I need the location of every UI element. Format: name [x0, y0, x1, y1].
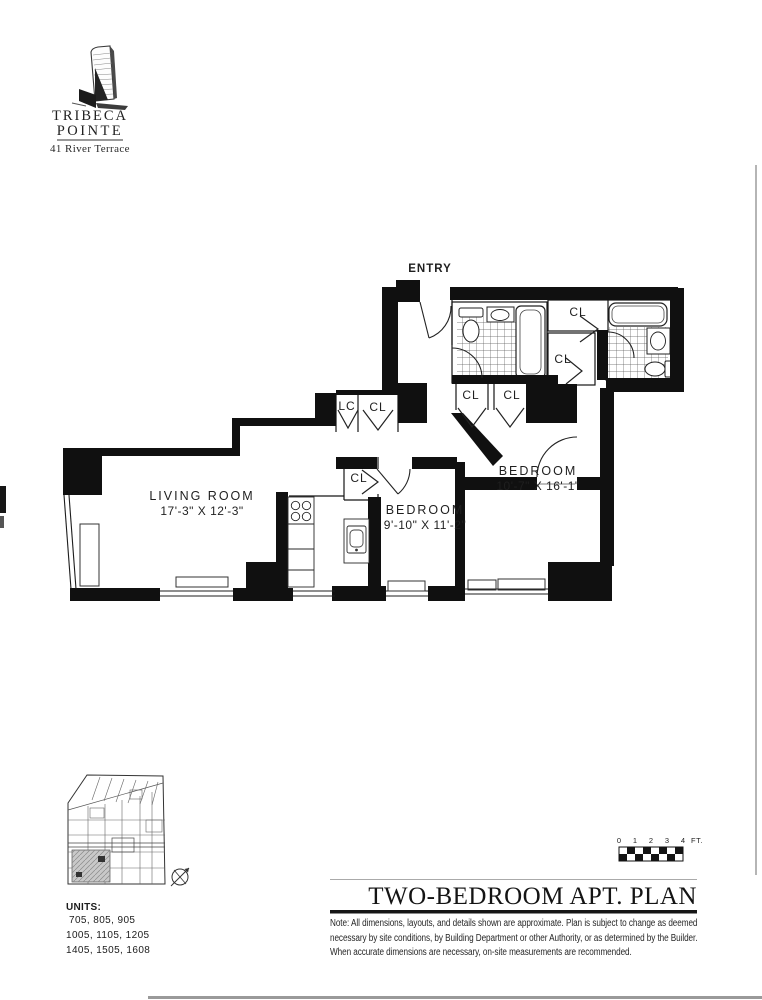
closet-label-cl-top-1: CL — [563, 305, 593, 319]
units-row: 1405, 1505, 1608 — [66, 943, 150, 958]
bedroom1-label: BEDROOM 9'-10" X 11'-2" — [365, 503, 485, 532]
logo-name-line2: POINTE — [40, 123, 140, 140]
scale-tick: 2 — [645, 836, 657, 845]
units-block: UNITS: 705, 805, 905 1005, 1105, 1205 14… — [66, 902, 150, 958]
units-row: 1005, 1105, 1205 — [66, 928, 150, 943]
scale-tick: 0 — [613, 836, 625, 845]
bathroom-1 — [452, 302, 547, 383]
room-dims: 9'-10" X 11'-2" — [365, 518, 485, 532]
floor-plan-drawing — [63, 280, 684, 601]
scale-tick: 4 — [677, 836, 689, 845]
closet-label-cl-top-2: CL — [548, 352, 578, 366]
room-dims: 17'-3" X 12'-3" — [132, 504, 272, 518]
unit-location-highlight — [72, 850, 110, 882]
closet-label-cl-dining: CL — [363, 400, 393, 414]
room-name: LIVING ROOM — [132, 489, 272, 503]
room-name: BEDROOM — [478, 464, 598, 478]
scale-bar — [619, 847, 683, 861]
kitchen-fixtures — [288, 497, 369, 587]
closet-label-cl-hall-2: CL — [497, 388, 527, 402]
units-row: 705, 805, 905 — [66, 913, 150, 928]
logo-address: 41 River Terrace — [40, 143, 140, 155]
room-name: BEDROOM — [365, 503, 485, 517]
bathroom-2 — [606, 300, 672, 380]
closet-label-cl-bedroom1: CL — [345, 471, 373, 485]
compass-icon — [171, 868, 189, 886]
living-room-label: LIVING ROOM 17'-3" X 12'-3" — [132, 489, 272, 518]
scale-unit-label: FT. — [691, 836, 703, 845]
room-dims: 10'-7" X 16'-1" — [478, 479, 598, 493]
plan-note: Note: All dimensions, layouts, and detai… — [330, 917, 697, 961]
closet-label-lc: LC — [335, 399, 359, 413]
scale-tick: 3 — [661, 836, 673, 845]
bedroom2-label: BEDROOM 10'-7" X 16'-1" — [478, 464, 598, 493]
key-plan-drawing — [68, 775, 189, 886]
scale-tick: 1 — [629, 836, 641, 845]
plan-title: TWO-BEDROOM APT. PLAN — [330, 883, 697, 911]
entry-label: ENTRY — [398, 263, 462, 275]
units-title: UNITS: — [66, 902, 150, 913]
closet-label-cl-hall-1: CL — [456, 388, 486, 402]
floor-plan-page: TRIBECA POINTE 41 River Terrace ENTRY LI… — [0, 0, 762, 1000]
